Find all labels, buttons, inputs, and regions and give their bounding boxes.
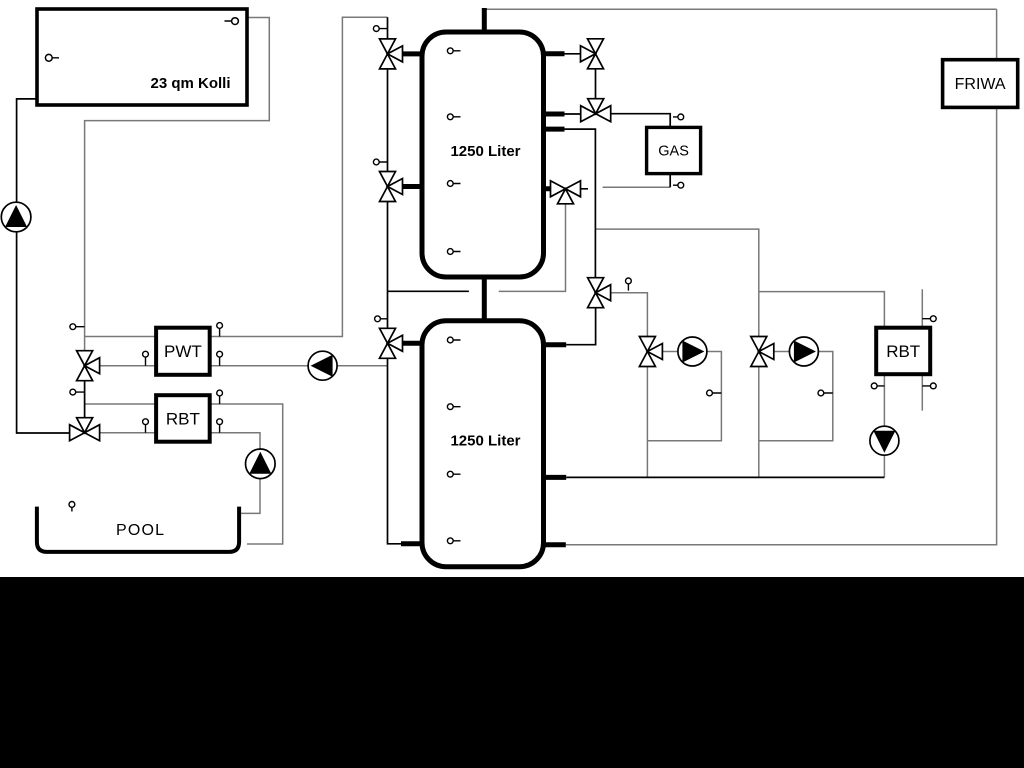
svg-text:FRIWA: FRIWA xyxy=(955,76,1006,93)
svg-text:POOL: POOL xyxy=(116,522,165,539)
svg-text:1250 Liter: 1250 Liter xyxy=(450,143,520,160)
svg-text:PWT: PWT xyxy=(164,342,202,361)
svg-text:RBT: RBT xyxy=(166,409,200,428)
svg-text:23 qm Kolli: 23 qm Kolli xyxy=(150,75,230,92)
svg-text:RBT: RBT xyxy=(886,342,920,361)
svg-text:1250 Liter: 1250 Liter xyxy=(450,433,520,450)
svg-text:GAS: GAS xyxy=(658,144,689,160)
